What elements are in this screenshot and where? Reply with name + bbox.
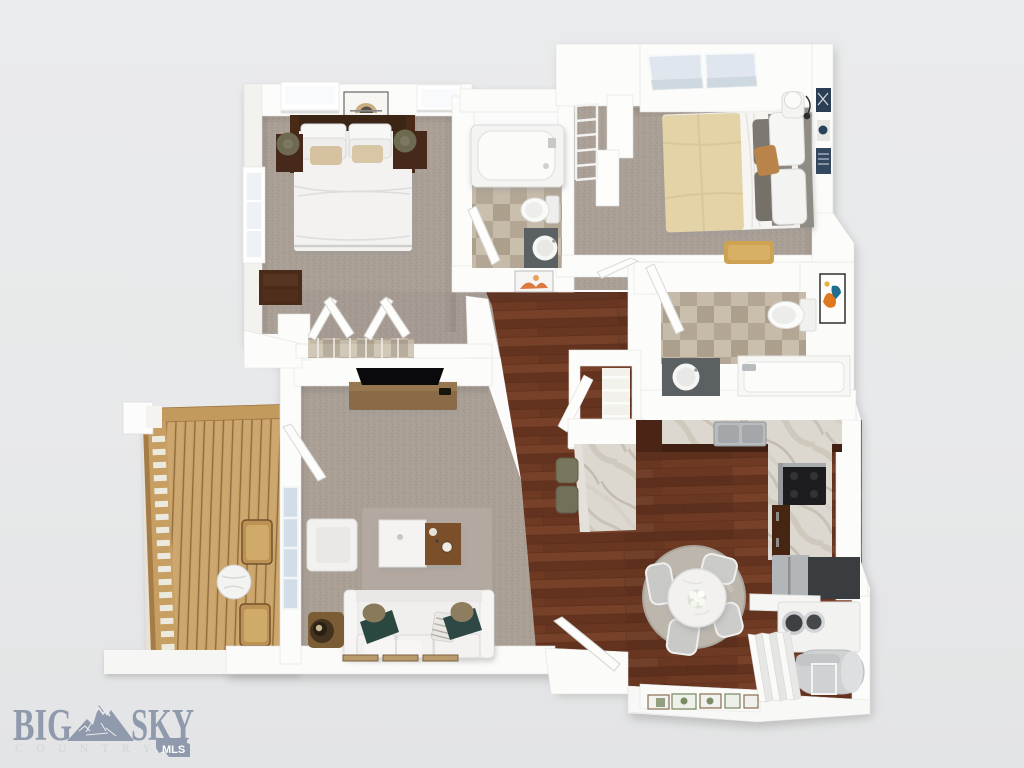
svg-text:MLS: MLS [162,744,185,756]
